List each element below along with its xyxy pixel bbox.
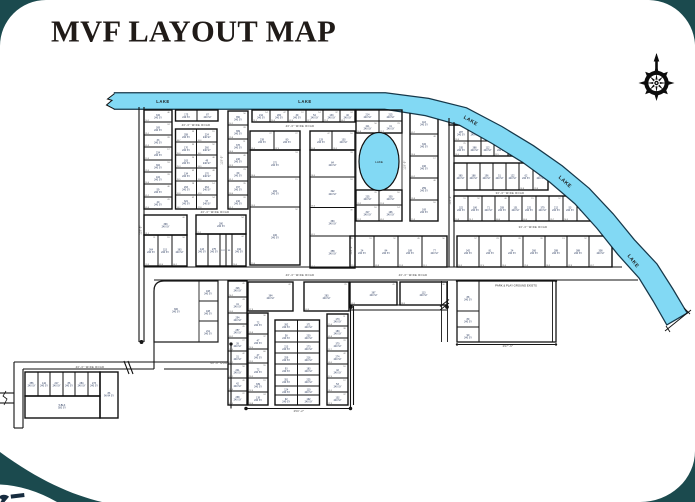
svg-text:240 SY: 240 SY [539, 209, 547, 212]
svg-text:20: 20 [243, 197, 245, 199]
svg-text:26.5: 26.5 [328, 390, 332, 392]
svg-text:36.3: 36.3 [546, 265, 550, 267]
svg-text:33: 33 [167, 174, 169, 176]
svg-text:42.1: 42.1 [311, 234, 315, 236]
svg-text:49: 49 [243, 155, 245, 157]
svg-text:28: 28 [243, 127, 245, 129]
svg-text:17.4: 17.4 [328, 376, 332, 378]
svg-text:110′-0″: 110′-0″ [404, 160, 407, 169]
svg-text:60.4: 60.4 [496, 219, 500, 221]
svg-text:41.2: 41.2 [229, 207, 233, 209]
svg-text:240 SY: 240 SY [496, 177, 504, 180]
svg-text:14: 14 [212, 183, 214, 185]
svg-text:240 SY: 240 SY [574, 252, 582, 255]
svg-text:240 SY: 240 SY [329, 164, 337, 167]
svg-text:13.2: 13.2 [357, 219, 361, 221]
svg-text:11: 11 [243, 141, 245, 143]
svg-text:240 SY: 240 SY [235, 251, 243, 254]
svg-text:240 SY: 240 SY [271, 193, 279, 196]
svg-text:40: 40 [503, 102, 505, 104]
svg-text:240 SY: 240 SY [364, 128, 372, 131]
svg-text:240 SY: 240 SY [154, 204, 162, 207]
svg-text:15.5: 15.5 [177, 179, 181, 181]
svg-text:18.4: 18.4 [229, 193, 233, 195]
svg-text:240 SY: 240 SY [282, 348, 290, 351]
svg-text:240 SY: 240 SY [234, 319, 242, 322]
svg-text:40′-0″ WIDE ROAD: 40′-0″ WIDE ROAD [76, 365, 105, 369]
svg-text:40′-0″ WIDE ROAD: 40′-0″ WIDE ROAD [286, 124, 315, 128]
svg-text:240 SY: 240 SY [182, 175, 190, 178]
svg-text:40′-0″ WIDE ROAD: 40′-0″ WIDE ROAD [201, 210, 230, 214]
svg-text:19.9: 19.9 [399, 265, 403, 267]
svg-text:53: 53 [167, 162, 169, 164]
svg-text:240 SY: 240 SY [234, 399, 242, 402]
svg-text:240 SY: 240 SY [182, 162, 190, 165]
svg-text:41: 41 [167, 199, 169, 201]
svg-text:32.8: 32.8 [568, 265, 572, 267]
svg-text:240 SY: 240 SY [254, 399, 262, 402]
svg-text:38.3: 38.3 [401, 303, 405, 305]
svg-text:35.1: 35.1 [145, 133, 149, 135]
svg-text:27.8: 27.8 [198, 207, 202, 209]
svg-text:58: 58 [242, 366, 244, 368]
svg-text:24.3: 24.3 [251, 205, 255, 207]
svg-text:44.7: 44.7 [177, 140, 181, 142]
svg-text:27.3: 27.3 [328, 403, 332, 405]
svg-text:240 SY: 240 SY [161, 251, 169, 254]
svg-text:49: 49 [242, 380, 244, 382]
svg-text:19.9: 19.9 [145, 158, 149, 160]
svg-text:19: 19 [263, 380, 265, 382]
svg-text:19: 19 [167, 237, 169, 239]
svg-text:39: 39 [350, 210, 352, 212]
svg-text:33: 33 [350, 152, 352, 154]
svg-text:240 SY: 240 SY [340, 141, 348, 144]
svg-text:11: 11 [343, 316, 345, 318]
svg-text:240 SY: 240 SY [334, 372, 342, 375]
svg-text:42: 42 [343, 353, 345, 355]
svg-text:52: 52 [212, 144, 214, 146]
svg-text:16: 16 [343, 366, 345, 368]
svg-text:54: 54 [192, 157, 194, 159]
svg-text:42.4: 42.4 [289, 120, 293, 122]
svg-text:59.9: 59.9 [455, 139, 459, 141]
svg-text:240 SY: 240 SY [198, 251, 206, 254]
svg-text:19: 19 [212, 131, 214, 133]
svg-text:45.7: 45.7 [311, 266, 315, 268]
svg-text:240 SY: 240 SY [464, 252, 472, 255]
svg-text:240 SY: 240 SY [234, 372, 242, 375]
svg-text:240 SY: 240 SY [484, 149, 492, 152]
svg-text:250′-2″: 250′-2″ [294, 409, 305, 413]
svg-text:240 SY: 240 SY [53, 385, 61, 388]
svg-text:240 SY: 240 SY [364, 116, 372, 119]
svg-text:96-94 SY: 96-94 SY [104, 395, 114, 398]
svg-text:48: 48 [433, 136, 435, 138]
svg-text:240 SY: 240 SY [305, 359, 313, 362]
svg-text:45.3: 45.3 [145, 145, 149, 147]
svg-text:240 SY: 240 SY [420, 124, 428, 127]
svg-text:11.1: 11.1 [423, 265, 427, 267]
svg-text:240 SY: 240 SY [271, 164, 279, 167]
svg-text:57: 57 [474, 238, 476, 240]
svg-text:30′-0″ WIDE ROAD: 30′-0″ WIDE ROAD [496, 191, 525, 195]
svg-text:15.9: 15.9 [324, 120, 328, 122]
svg-text:41.1: 41.1 [229, 179, 233, 181]
svg-text:59.4: 59.4 [233, 264, 237, 266]
svg-text:34.6: 34.6 [229, 151, 233, 153]
svg-text:240 SY: 240 SY [203, 136, 211, 139]
svg-text:23.5: 23.5 [249, 361, 253, 363]
svg-text:240 SY: 240 SY [420, 294, 428, 297]
svg-text:240 SY: 240 SY [522, 177, 530, 180]
svg-text:86: 86 [500, 111, 503, 114]
svg-text:240 SY: 240 SY [457, 149, 465, 152]
svg-text:56.2: 56.2 [229, 295, 233, 297]
svg-text:15.6: 15.6 [328, 324, 332, 326]
svg-text:240 SY: 240 SY [234, 203, 242, 206]
svg-text:10: 10 [350, 133, 352, 135]
svg-text:10.8: 10.8 [455, 219, 459, 221]
svg-text:46: 46 [167, 112, 169, 114]
svg-text:240 SY: 240 SY [406, 252, 414, 255]
svg-text:240 SY: 240 SY [257, 117, 265, 120]
svg-text:57: 57 [558, 198, 560, 200]
svg-text:60: 60 [263, 351, 265, 353]
svg-text:240 SY: 240 SY [497, 113, 505, 116]
svg-text:240 SY: 240 SY [154, 129, 162, 132]
svg-text:27: 27 [242, 340, 244, 342]
svg-text:240 SY: 240 SY [524, 134, 532, 137]
svg-text:110′-0″: 110′-0″ [221, 155, 224, 164]
svg-text:240 SY: 240 SY [431, 252, 439, 255]
svg-text:24: 24 [263, 394, 265, 396]
svg-text:24: 24 [167, 124, 169, 126]
svg-text:18: 18 [350, 179, 352, 181]
svg-text:32.3: 32.3 [229, 165, 233, 167]
svg-text:58: 58 [182, 237, 184, 239]
svg-text:240 SY: 240 SY [334, 358, 342, 361]
svg-text:37.7: 37.7 [307, 120, 311, 122]
svg-text:240 SY: 240 SY [234, 189, 242, 192]
svg-text:240 SY: 240 SY [234, 133, 242, 136]
svg-text:28: 28 [518, 238, 520, 240]
svg-text:240 SY: 240 SY [234, 175, 242, 178]
svg-text:20.2: 20.2 [357, 203, 361, 205]
svg-text:37: 37 [335, 112, 337, 114]
svg-text:240 SY: 240 SY [28, 385, 36, 388]
svg-text:240 SY: 240 SY [176, 251, 184, 254]
svg-text:33: 33 [192, 144, 194, 146]
svg-text:43.5: 43.5 [351, 303, 355, 305]
svg-text:39.7: 39.7 [550, 219, 554, 221]
svg-text:240 SY: 240 SY [282, 337, 290, 340]
svg-text:25: 25 [344, 284, 346, 286]
svg-text:240 SY: 240 SY [329, 222, 337, 225]
svg-text:240 SY: 240 SY [317, 141, 325, 144]
svg-text:240 SY: 240 SY [182, 189, 190, 192]
svg-text:16.6: 16.6 [271, 120, 275, 122]
svg-text:240 SY: 240 SY [147, 251, 155, 254]
svg-text:45.2: 45.2 [145, 195, 149, 197]
svg-text:49.4: 49.4 [145, 207, 149, 209]
svg-text:16: 16 [397, 192, 399, 194]
svg-text:43: 43 [242, 299, 244, 301]
svg-text:40′-0″ WIDE ROAD: 40′-0″ WIDE ROAD [182, 123, 211, 127]
svg-text:25: 25 [463, 143, 465, 145]
svg-text:240 SY: 240 SY [204, 313, 212, 316]
svg-text:95: 95 [228, 250, 231, 252]
svg-text:38: 38 [343, 328, 345, 330]
svg-text:16.9: 16.9 [458, 265, 462, 267]
svg-text:14.1: 14.1 [229, 123, 233, 125]
svg-text:45: 45 [242, 326, 244, 328]
svg-text:50.1: 50.1 [145, 120, 149, 122]
svg-text:37: 37 [343, 394, 345, 396]
svg-text:24: 24 [350, 112, 352, 114]
svg-text:240 SY: 240 SY [65, 385, 73, 388]
svg-text:240 SY: 240 SY [566, 209, 574, 212]
svg-text:240 SY: 240 SY [234, 147, 242, 150]
svg-text:52.6: 52.6 [249, 390, 253, 392]
svg-text:240 SY: 240 SY [470, 177, 478, 180]
svg-text:240 SY: 240 SY [305, 337, 313, 340]
svg-text:240 SY: 240 SY [204, 333, 212, 336]
svg-text:240 SY: 240 SY [530, 252, 538, 255]
svg-text:240 SY: 240 SY [182, 116, 190, 119]
svg-text:240 SY: 240 SY [387, 214, 395, 217]
svg-text:240 SY: 240 SY [328, 117, 336, 120]
svg-text:240 SY: 240 SY [154, 179, 162, 182]
svg-text:240 SY: 240 SY [40, 385, 48, 388]
svg-text:40.2: 40.2 [411, 176, 415, 178]
svg-text:240 SY: 240 SY [364, 198, 372, 201]
svg-text:31.6: 31.6 [198, 179, 202, 181]
svg-text:240 SY: 240 SY [370, 294, 378, 297]
svg-text:240 SY: 240 SY [597, 252, 605, 255]
svg-text:37: 37 [263, 336, 265, 338]
svg-text:240 SY: 240 SY [305, 391, 313, 394]
svg-text:240 SY: 240 SY [508, 252, 516, 255]
svg-text:240 SY: 240 SY [311, 117, 319, 120]
svg-text:240 SY: 240 SY [154, 142, 162, 145]
svg-text:26.6: 26.6 [411, 154, 415, 156]
svg-text:240 SY: 240 SY [234, 306, 242, 309]
svg-text:51: 51 [369, 238, 371, 240]
svg-text:240 SY: 240 SY [305, 370, 313, 373]
svg-text:30: 30 [263, 315, 265, 317]
svg-text:42: 42 [242, 353, 244, 355]
svg-text:240 SY: 240 SY [464, 299, 472, 302]
svg-text:14: 14 [265, 112, 267, 114]
svg-text:12: 12 [343, 380, 345, 382]
svg-text:240 SY: 240 SY [293, 117, 301, 120]
svg-text:48.9: 48.9 [229, 403, 233, 405]
svg-text:240 SY: 240 SY [329, 193, 337, 196]
svg-text:240 SY: 240 SY [154, 167, 162, 170]
svg-text:240 SY: 240 SY [254, 342, 262, 345]
svg-text:14: 14 [318, 112, 320, 114]
svg-text:27.8: 27.8 [249, 309, 253, 311]
svg-text:240 SY: 240 SY [420, 211, 428, 214]
svg-text:240 SY: 240 SY [271, 237, 279, 240]
svg-text:46: 46 [167, 186, 169, 188]
svg-text:240 SY: 240 SY [387, 128, 395, 131]
svg-text:16.4: 16.4 [145, 182, 149, 184]
svg-text:240 SY: 240 SY [154, 154, 162, 157]
svg-text:240 SY: 240 SY [334, 321, 342, 324]
svg-text:240 SY: 240 SY [334, 333, 342, 336]
svg-text:45: 45 [417, 238, 419, 240]
svg-text:59: 59 [489, 102, 491, 104]
svg-text:25.6: 25.6 [524, 265, 528, 267]
svg-text:43.7: 43.7 [590, 265, 594, 267]
svg-text:15.3: 15.3 [411, 219, 415, 221]
svg-text:24.4: 24.4 [455, 154, 459, 156]
svg-text:22: 22 [242, 393, 244, 395]
svg-text:52.4: 52.4 [249, 347, 253, 349]
svg-text:52: 52 [584, 238, 586, 240]
svg-text:31.8: 31.8 [177, 193, 181, 195]
svg-text:48: 48 [212, 170, 214, 172]
svg-text:47.8: 47.8 [198, 193, 202, 195]
svg-text:240 SY: 240 SY [282, 391, 290, 394]
svg-text:46.2: 46.2 [341, 120, 345, 122]
svg-text:240 SY: 240 SY [329, 253, 337, 256]
svg-text:240 SY: 240 SY [234, 119, 242, 122]
svg-text:240 SY: 240 SY [509, 177, 517, 180]
svg-text:240 SY: 240 SY [182, 149, 190, 152]
svg-text:28: 28 [192, 183, 194, 185]
svg-text:197: 197 [221, 250, 225, 252]
svg-text:240 SY: 240 SY [457, 209, 465, 212]
svg-text:240 SY: 240 SY [305, 401, 313, 404]
svg-text:240 SY: 240 SY [512, 209, 520, 212]
svg-text:240 SY: 240 SY [323, 297, 331, 300]
svg-text:43.6: 43.6 [159, 264, 163, 266]
svg-text:110′-0″: 110′-0″ [350, 245, 353, 254]
svg-text:59: 59 [474, 102, 476, 104]
svg-text:49.5: 49.5 [328, 362, 332, 364]
svg-text:240 SY: 240 SY [204, 116, 212, 119]
svg-text:240 SY: 240 SY [275, 117, 283, 120]
svg-text:240 SY: 240 SY [552, 209, 560, 212]
svg-text:240 SY: 240 SY [420, 168, 428, 171]
svg-text:240 SY: 240 SY [358, 252, 366, 255]
svg-text:30.9: 30.9 [229, 311, 233, 313]
svg-text:240 SY: 240 SY [78, 385, 86, 388]
svg-text:240 SY: 240 SY [483, 113, 491, 116]
svg-text:20.6: 20.6 [198, 140, 202, 142]
svg-text:40.9: 40.9 [305, 309, 309, 311]
svg-text:40′-0″ WIDE ROAD: 40′-0″ WIDE ROAD [286, 273, 315, 277]
svg-text:56: 56 [442, 238, 444, 240]
svg-text:12: 12 [301, 112, 303, 114]
svg-text:18.8: 18.8 [249, 403, 253, 405]
svg-text:186: 186 [538, 131, 543, 134]
svg-text:49.8: 49.8 [375, 265, 379, 267]
svg-text:240 SY: 240 SY [203, 162, 211, 165]
svg-text:240 SY: 240 SY [387, 198, 395, 201]
svg-text:60.2: 60.2 [229, 336, 233, 338]
svg-text:51.2: 51.2 [469, 219, 473, 221]
svg-text:240 SY: 240 SY [464, 321, 472, 324]
svg-text:51.1: 51.1 [253, 120, 257, 122]
svg-text:240 SY: 240 SY [305, 381, 313, 384]
svg-text:13: 13 [562, 238, 564, 240]
svg-text:23.8: 23.8 [534, 188, 538, 190]
svg-text:240 SY: 240 SY [234, 290, 242, 293]
svg-text:240 SY: 240 SY [471, 209, 479, 212]
svg-text:59: 59 [192, 131, 194, 133]
svg-text:45.1: 45.1 [229, 376, 233, 378]
svg-text:26.4: 26.4 [502, 265, 506, 267]
svg-text:28: 28 [167, 137, 169, 139]
svg-text:47: 47 [327, 133, 329, 135]
svg-text:14.2: 14.2 [177, 207, 181, 209]
svg-text:36.6: 36.6 [251, 175, 255, 177]
svg-text:56.3: 56.3 [564, 219, 568, 221]
svg-text:40: 40 [504, 198, 506, 200]
svg-text:240 SY: 240 SY [334, 399, 342, 402]
svg-text:297′-6″: 297′-6″ [503, 344, 514, 348]
svg-text:LAKE: LAKE [298, 99, 311, 104]
svg-text:MVF LAYOUT MAP: MVF LAYOUT MAP [51, 15, 336, 49]
svg-text:240 SY: 240 SY [305, 348, 313, 351]
svg-text:PARK & PLAY GROUND EXISTS: PARK & PLAY GROUND EXISTS [495, 284, 537, 288]
svg-text:19.9: 19.9 [380, 203, 384, 205]
svg-text:23: 23 [397, 123, 399, 125]
svg-text:240 SY: 240 SY [182, 136, 190, 139]
svg-text:240 SY: 240 SY [182, 203, 190, 206]
svg-text:240 SY: 240 SY [90, 385, 98, 388]
svg-text:240 SY: 240 SY [172, 311, 180, 314]
svg-text:240 SY: 240 SY [282, 381, 290, 384]
svg-text:10: 10 [374, 207, 376, 209]
svg-text:110′-0″: 110′-0″ [449, 195, 452, 204]
svg-text:31: 31 [374, 192, 376, 194]
svg-text:51: 51 [463, 198, 465, 200]
svg-text:49.1: 49.1 [380, 219, 384, 221]
svg-text:59.3: 59.3 [249, 376, 253, 378]
svg-text:240 SY: 240 SY [162, 226, 170, 229]
svg-text:39.8: 39.8 [177, 153, 181, 155]
svg-text:54: 54 [212, 197, 214, 199]
svg-text:59.2: 59.2 [229, 362, 233, 364]
svg-text:29.8: 29.8 [229, 137, 233, 139]
svg-text:364: 364 [526, 131, 531, 134]
svg-text:240 SY: 240 SY [457, 177, 465, 180]
svg-text:25.3: 25.3 [177, 166, 181, 168]
svg-text:240 SY: 240 SY [282, 401, 290, 404]
svg-text:240 SY: 240 SY [387, 116, 395, 119]
svg-text:46: 46 [212, 157, 214, 159]
svg-text:240 SY: 240 SY [217, 225, 225, 228]
svg-text:20.9: 20.9 [145, 264, 149, 266]
svg-text:45: 45 [392, 284, 394, 286]
svg-text:40: 40 [182, 217, 184, 219]
svg-text:42: 42 [288, 284, 290, 286]
svg-text:24.8: 24.8 [520, 188, 524, 190]
svg-text:103: 103 [485, 111, 490, 114]
svg-text:35.8: 35.8 [249, 332, 253, 334]
svg-text:60.6: 60.6 [523, 219, 527, 221]
svg-text:14: 14 [397, 207, 399, 209]
svg-text:25.4: 25.4 [229, 349, 233, 351]
svg-text:240 SY: 240 SY [498, 209, 506, 212]
svg-text:56: 56 [243, 113, 245, 115]
svg-text:50: 50 [374, 123, 376, 125]
